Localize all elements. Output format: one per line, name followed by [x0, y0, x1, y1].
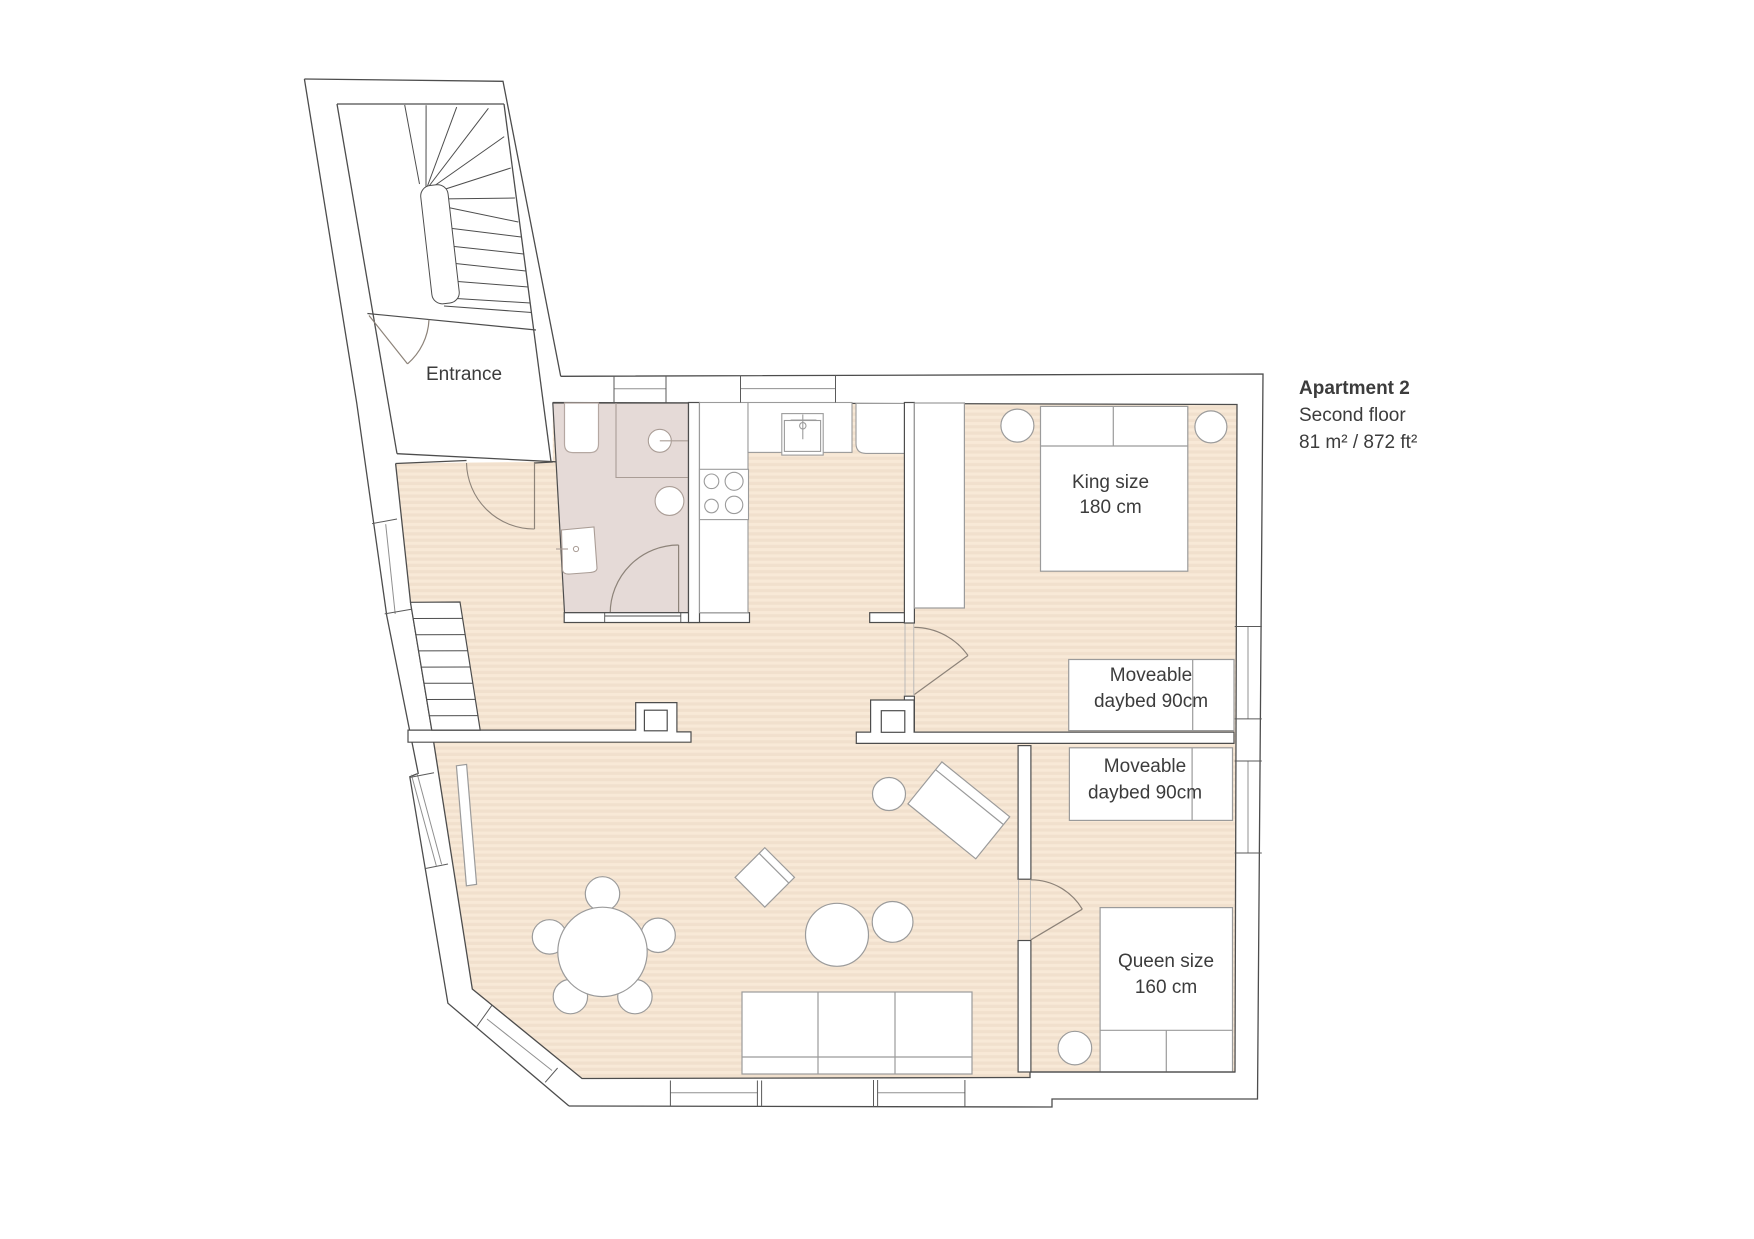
svg-text:daybed 90cm: daybed 90cm	[1094, 691, 1208, 712]
svg-text:81 m² / 872 ft²: 81 m² / 872 ft²	[1299, 432, 1417, 453]
svg-text:Apartment 2: Apartment 2	[1299, 378, 1410, 399]
svg-text:160 cm: 160 cm	[1135, 977, 1197, 998]
svg-text:180 cm: 180 cm	[1079, 497, 1141, 518]
svg-text:Queen size: Queen size	[1118, 951, 1214, 972]
svg-text:Moveable: Moveable	[1104, 756, 1186, 777]
svg-text:daybed 90cm: daybed 90cm	[1088, 783, 1202, 804]
svg-text:Second floor: Second floor	[1299, 405, 1406, 426]
svg-text:King size: King size	[1072, 472, 1149, 493]
svg-text:Moveable: Moveable	[1110, 665, 1192, 686]
svg-text:Entrance: Entrance	[426, 364, 502, 385]
